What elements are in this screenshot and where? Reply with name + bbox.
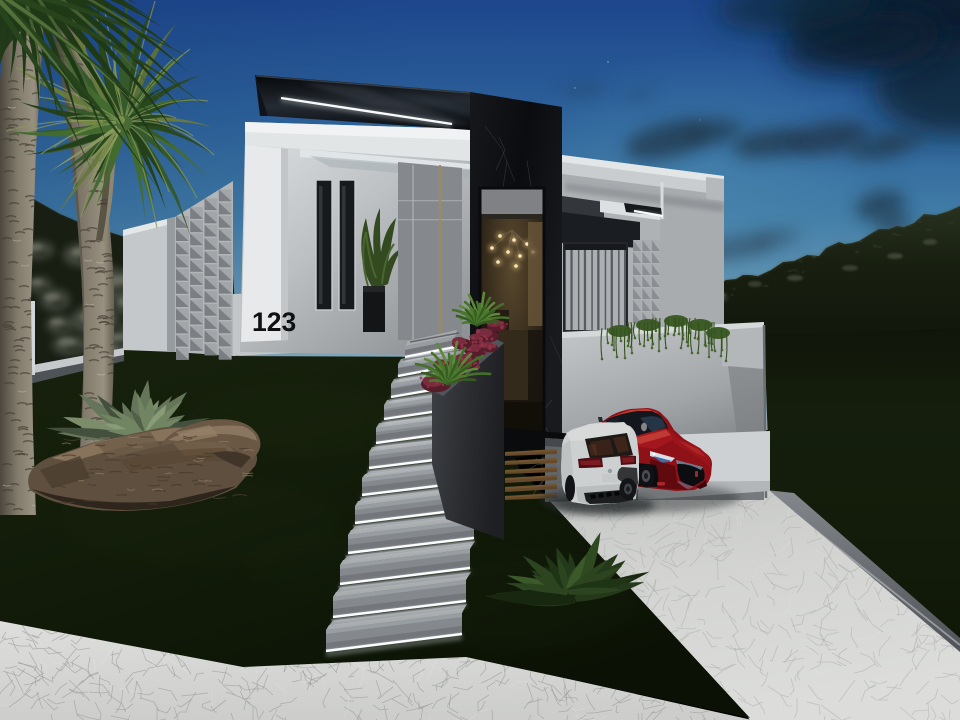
svg-text:123: 123 bbox=[252, 307, 296, 337]
